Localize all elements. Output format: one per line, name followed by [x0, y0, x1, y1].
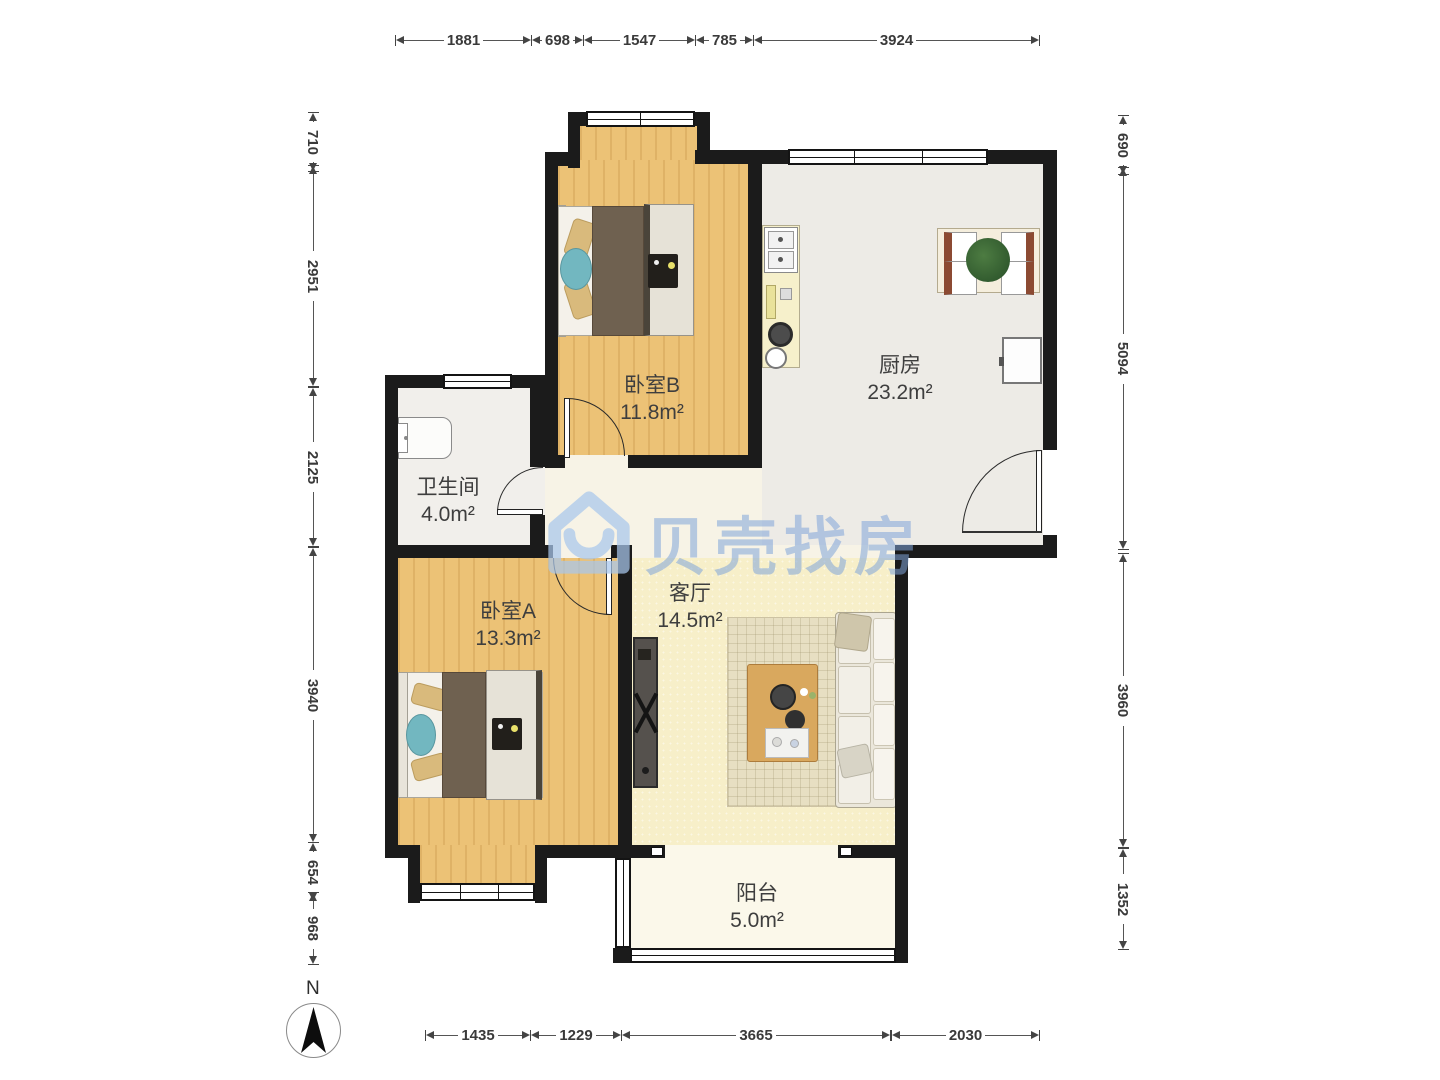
wall-cap-left: [651, 847, 663, 856]
coffee-table-cup-green: [809, 692, 816, 699]
dim-value: 2951: [305, 259, 322, 292]
door-opening-entry: [1043, 450, 1057, 535]
wall-bedb-left: [545, 152, 558, 468]
wall-cap-right: [840, 847, 852, 856]
wall-bedb-kitchen: [748, 150, 762, 468]
fridge-handle: [999, 357, 1004, 366]
kitchen-small-box: [780, 288, 792, 300]
window-bedroom-b: [586, 111, 695, 127]
room-area: 5.0m²: [677, 907, 837, 934]
coffee-table-cup-white: [800, 688, 808, 696]
dim-value: 785: [709, 32, 740, 49]
dim-value: 698: [542, 32, 573, 49]
window-bathroom: [443, 374, 512, 389]
stove-wok: [765, 347, 787, 369]
dim-value: 3940: [305, 678, 322, 711]
tv-led-yellow: [511, 725, 518, 732]
room-label-bedroom-b: 卧室B 11.8m²: [572, 372, 732, 426]
sofa-back-4: [873, 748, 895, 800]
room-name: 卫生间: [378, 474, 518, 501]
dim-right-5094: 5094: [1114, 167, 1132, 550]
sofa-back-3: [873, 704, 895, 746]
bed-a-round-pillow: [406, 714, 436, 756]
dim-bottom-1435: 1435: [425, 1027, 531, 1043]
dim-value: 3960: [1115, 684, 1132, 717]
coffee-table-bowl-1: [770, 684, 796, 710]
watermark-text: 贝壳找房: [644, 497, 924, 588]
dim-right-1352: 1352: [1114, 848, 1132, 950]
room-label-bathroom: 卫生间 4.0m²: [378, 474, 518, 528]
dim-value: 710: [305, 129, 322, 154]
dim-bottom-3665: 3665: [621, 1027, 891, 1043]
dim-top-1547: 1547: [583, 32, 696, 48]
wall-right-outer: [895, 545, 908, 963]
tv-stand-item-top: [638, 649, 651, 660]
dining-plant: [966, 238, 1010, 282]
tv-led-white: [654, 260, 659, 265]
floorplan-canvas: 贝壳找房 卧室B 11.8m² 厨房 23.2m² 卫生间 4.0m² 卧室A …: [0, 0, 1440, 1080]
room-name: 阳台: [677, 880, 837, 907]
sofa-back-2: [873, 662, 895, 702]
compass-north-label: N: [306, 978, 320, 1000]
tv-led-white: [498, 724, 503, 729]
bed-a-tv: [492, 718, 522, 750]
room-label-bedroom-a: 卧室A 13.3m²: [428, 598, 588, 652]
room-name: 客厅: [610, 580, 770, 607]
dim-value: 1547: [620, 32, 659, 49]
sofa-seat-2: [838, 666, 871, 714]
wall-bay-right: [535, 845, 547, 903]
room-name: 卧室A: [428, 598, 588, 625]
wall-bay-left: [408, 845, 420, 903]
tray-plate-1: [772, 737, 782, 747]
dim-bottom-1229: 1229: [531, 1027, 621, 1043]
coffee-table-tray: [765, 728, 809, 758]
bed-b-tv: [648, 254, 678, 288]
bathroom-sink-drain: [404, 436, 408, 440]
dim-top-785: 785: [696, 32, 753, 48]
room-label-kitchen: 厨房 23.2m²: [820, 352, 980, 406]
dim-value: 5094: [1115, 342, 1132, 375]
fridge: [1002, 337, 1042, 384]
window-tick: [498, 885, 499, 899]
window-tick: [640, 113, 641, 125]
dim-right-3960: 3960: [1114, 553, 1132, 848]
sink-drain-1: [778, 237, 783, 242]
dim-value: 1435: [458, 1027, 497, 1044]
dim-value: 690: [1115, 132, 1132, 157]
tv-stand-item-bottom: [642, 767, 649, 774]
dim-value: 968: [305, 916, 322, 941]
dim-top-1881: 1881: [395, 32, 532, 48]
dim-value: 2030: [946, 1027, 985, 1044]
room-area: 4.0m²: [378, 501, 518, 528]
door-opening-bedroom-b: [565, 455, 628, 468]
door-threshold-entry: [962, 531, 1042, 533]
dim-value: 2125: [305, 450, 322, 483]
dim-left-968: 968: [304, 892, 322, 965]
bed-b-blanket: [592, 206, 644, 336]
dim-value: 1352: [1115, 882, 1132, 915]
room-area: 14.5m²: [610, 607, 770, 634]
room-area: 13.3m²: [428, 625, 588, 652]
window-balcony-left: [615, 858, 631, 948]
window-bay-bedroom-a: [420, 883, 535, 901]
tv-led-yellow: [668, 262, 675, 269]
window-balcony-bottom: [630, 948, 896, 963]
sink-drain-2: [778, 257, 783, 262]
dim-left-2951: 2951: [304, 165, 322, 387]
dim-left-710: 710: [304, 112, 322, 165]
dim-bottom-2030: 2030: [891, 1027, 1040, 1043]
dim-value: 1229: [556, 1027, 595, 1044]
kitchen-utensil-strip: [766, 285, 776, 319]
dim-right-690: 690: [1114, 115, 1132, 167]
bed-b-round-pillow: [560, 248, 592, 290]
watermark: 贝壳找房: [540, 483, 920, 587]
stove-burner: [768, 322, 793, 347]
dim-top-698: 698: [532, 32, 583, 48]
floor-bedroom-a-bay: [420, 845, 535, 888]
window-tick: [854, 151, 855, 163]
wall-left-outer: [385, 375, 398, 858]
dim-value: 3924: [877, 32, 916, 49]
tray-plate-2: [790, 739, 799, 748]
dim-top-3924: 3924: [753, 32, 1040, 48]
sofa-back-1: [873, 618, 895, 660]
dim-left-3940: 3940: [304, 547, 322, 843]
coffee-table-bowl-2: [785, 710, 805, 730]
room-name: 卧室B: [572, 372, 732, 399]
room-name: 厨房: [820, 352, 980, 379]
kitchen-sink: [764, 227, 798, 273]
bed-a-blanket: [442, 672, 486, 798]
dim-left-2125: 2125: [304, 387, 322, 547]
dim-value: 3665: [736, 1027, 775, 1044]
sofa-pillow-gray: [834, 612, 873, 652]
window-kitchen: [788, 149, 988, 165]
dim-value: 1881: [444, 32, 483, 49]
room-area: 11.8m²: [572, 399, 732, 426]
room-label-balcony: 阳台 5.0m²: [677, 880, 837, 934]
wall-bathroom-right-upper: [530, 388, 545, 467]
dim-value: 654: [305, 859, 322, 884]
dim-left-654: 654: [304, 843, 322, 892]
room-label-living: 客厅 14.5m²: [610, 580, 770, 634]
beike-house-logo-icon: [540, 483, 638, 581]
tv-stand: [633, 637, 658, 788]
room-area: 23.2m²: [820, 379, 980, 406]
window-tick: [460, 885, 461, 899]
window-tick: [922, 151, 923, 163]
